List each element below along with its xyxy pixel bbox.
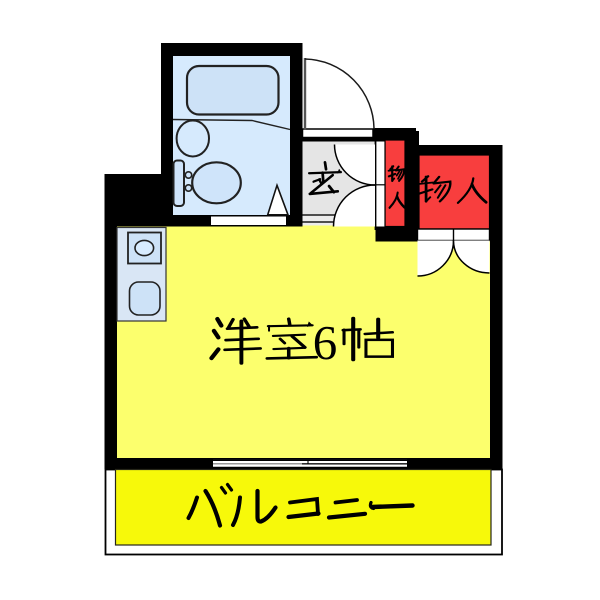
svg-text:6: 6 <box>313 315 338 370</box>
